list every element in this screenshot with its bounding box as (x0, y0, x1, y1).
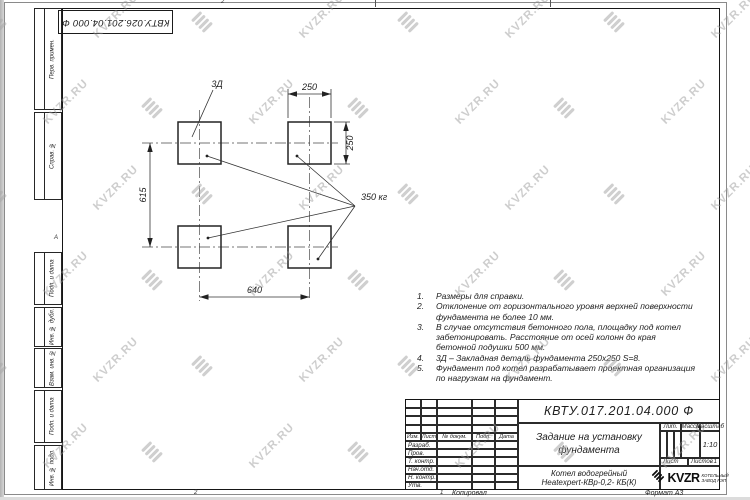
company-cell: KVZR КОТЕЛЬНЫЙ ЗАВОД РЭП (660, 466, 720, 490)
zone-marker-top: 2 (221, 0, 224, 5)
signature-cell (437, 482, 472, 490)
signature-cell (472, 482, 495, 490)
signature-cell (472, 449, 495, 457)
mass-cell (681, 431, 700, 458)
margin-cell-inv-orig: Инв. № подл. (34, 445, 62, 490)
designation-cell: КВТУ.017.201.04.000 Ф (518, 399, 720, 423)
revision-cell (437, 408, 472, 417)
revision-header: Дата (495, 433, 518, 441)
revision-cell (472, 416, 495, 425)
signature-cell (495, 466, 518, 474)
revision-table (405, 399, 518, 433)
revision-cell (421, 408, 437, 417)
footer-copied-by: Копировал (452, 490, 487, 497)
margin-cell-repl-inv: Взам. инв. № (34, 348, 62, 388)
revision-cell (495, 408, 518, 417)
footer-format: Формат А3 (645, 490, 683, 497)
revision-cell (437, 425, 472, 434)
signature-cell (437, 449, 472, 457)
signature-cell (472, 466, 495, 474)
revision-cell (495, 416, 518, 425)
rotated-designation-box: КВТУ.026.201.04.000 Ф (58, 10, 173, 34)
document-title: Задание на установку фундамента (519, 432, 659, 457)
margin-label: Подп. и дата (44, 391, 61, 442)
product-name: Котел водогрейный (551, 469, 627, 479)
signature-cell (437, 474, 472, 482)
signature-role: Нач.отд. (405, 466, 437, 474)
margin-label: Инв. № дубл. (44, 308, 61, 346)
sheet-cell: Лист (660, 458, 688, 466)
signature-cell (437, 466, 472, 474)
revision-header: Изм. (405, 433, 421, 441)
revision-cell (405, 399, 421, 408)
revision-cell (495, 399, 518, 408)
signature-role: Разраб. (405, 441, 437, 449)
revision-cell (421, 416, 437, 425)
zone-marker-bottom: 2 (194, 490, 197, 496)
product-cell: Котел водогрейный Heatexpert-КВр-0,2- КБ… (518, 466, 660, 490)
lit-cell (660, 431, 667, 458)
revision-cell (472, 425, 495, 434)
revision-cell (495, 425, 518, 434)
margin-cell-inv-dupl: Инв. № дубл. (34, 307, 62, 347)
lit-cell (674, 431, 681, 458)
signature-cell (495, 441, 518, 449)
margin-cell-ref-number: Справ. № (34, 112, 62, 200)
zone-tick (375, 0, 376, 7)
rotated-designation: КВТУ.026.201.04.000 Ф (62, 17, 170, 28)
revision-cell (472, 399, 495, 408)
zone-tick (550, 0, 551, 7)
margin-label: Справ. № (44, 113, 61, 199)
revision-header: Лист (421, 433, 437, 441)
margin-label: Подп. и дата (44, 253, 61, 304)
signature-rows: Разраб.Пров.Т. контр.Нач.отд.Н. контр.Ут… (405, 441, 518, 490)
signature-role: Н. контр. (405, 474, 437, 482)
signature-cell (495, 449, 518, 457)
sheets-cell: Листов 1 (688, 458, 720, 466)
signature-role: Т. контр. (405, 457, 437, 465)
lit-cell (667, 431, 674, 458)
sheets-label: Листов (691, 459, 713, 465)
margin-label: Инв. № подл. (44, 446, 61, 489)
title-cell: Задание на установку фундамента (518, 423, 660, 466)
kvzr-emblem-icon (651, 469, 665, 488)
revision-header: № докум. (437, 433, 472, 441)
signature-cell (495, 482, 518, 490)
lit-header: Лит. (660, 423, 681, 431)
document-designation: КВТУ.017.201.04.000 Ф (544, 404, 694, 418)
margin-cell-sign-date2: Подп. и дата (34, 390, 62, 443)
revision-cell (472, 408, 495, 417)
revision-cell (405, 408, 421, 417)
signature-cell (495, 457, 518, 465)
signature-cell (472, 457, 495, 465)
margin-label: Взам. инв. № (44, 349, 61, 387)
revision-cell (437, 416, 472, 425)
scale-header: Масштаб (700, 423, 720, 431)
signature-cell (437, 457, 472, 465)
zone-marker-left: А (54, 235, 58, 241)
sheets-value: 1 (714, 459, 717, 465)
margin-cell-sign-date: Подп. и дата (34, 252, 62, 305)
scale-value: 1:10 (703, 440, 718, 449)
revision-cell (421, 425, 437, 434)
revision-cell (405, 416, 421, 425)
revision-cell (437, 399, 472, 408)
revision-cell (421, 399, 437, 408)
revision-header: Подп. (472, 433, 495, 441)
scale-cell: 1:10 (700, 431, 720, 458)
kvzr-logo-text: KVZR (667, 471, 699, 485)
signature-role: Утв. (405, 482, 437, 490)
signature-cell (437, 441, 472, 449)
product-model: Heatexpert-КВр-0,2- КБ(К) (542, 478, 637, 488)
revision-header-row: Изм.Лист№ докум.Подп.Дата (405, 433, 518, 441)
signature-cell (472, 474, 495, 482)
company-subtitle: КОТЕЛЬНЫЙ ЗАВОД РЭП (702, 473, 729, 483)
drawing-sheet: Перв. примен. Справ. № Подп. и дата Инв.… (0, 0, 750, 500)
signature-role: Пров. (405, 449, 437, 457)
revision-cell (405, 425, 421, 434)
signature-cell (495, 474, 518, 482)
zone-marker-bottom: 1 (440, 490, 443, 496)
signature-cell (472, 441, 495, 449)
